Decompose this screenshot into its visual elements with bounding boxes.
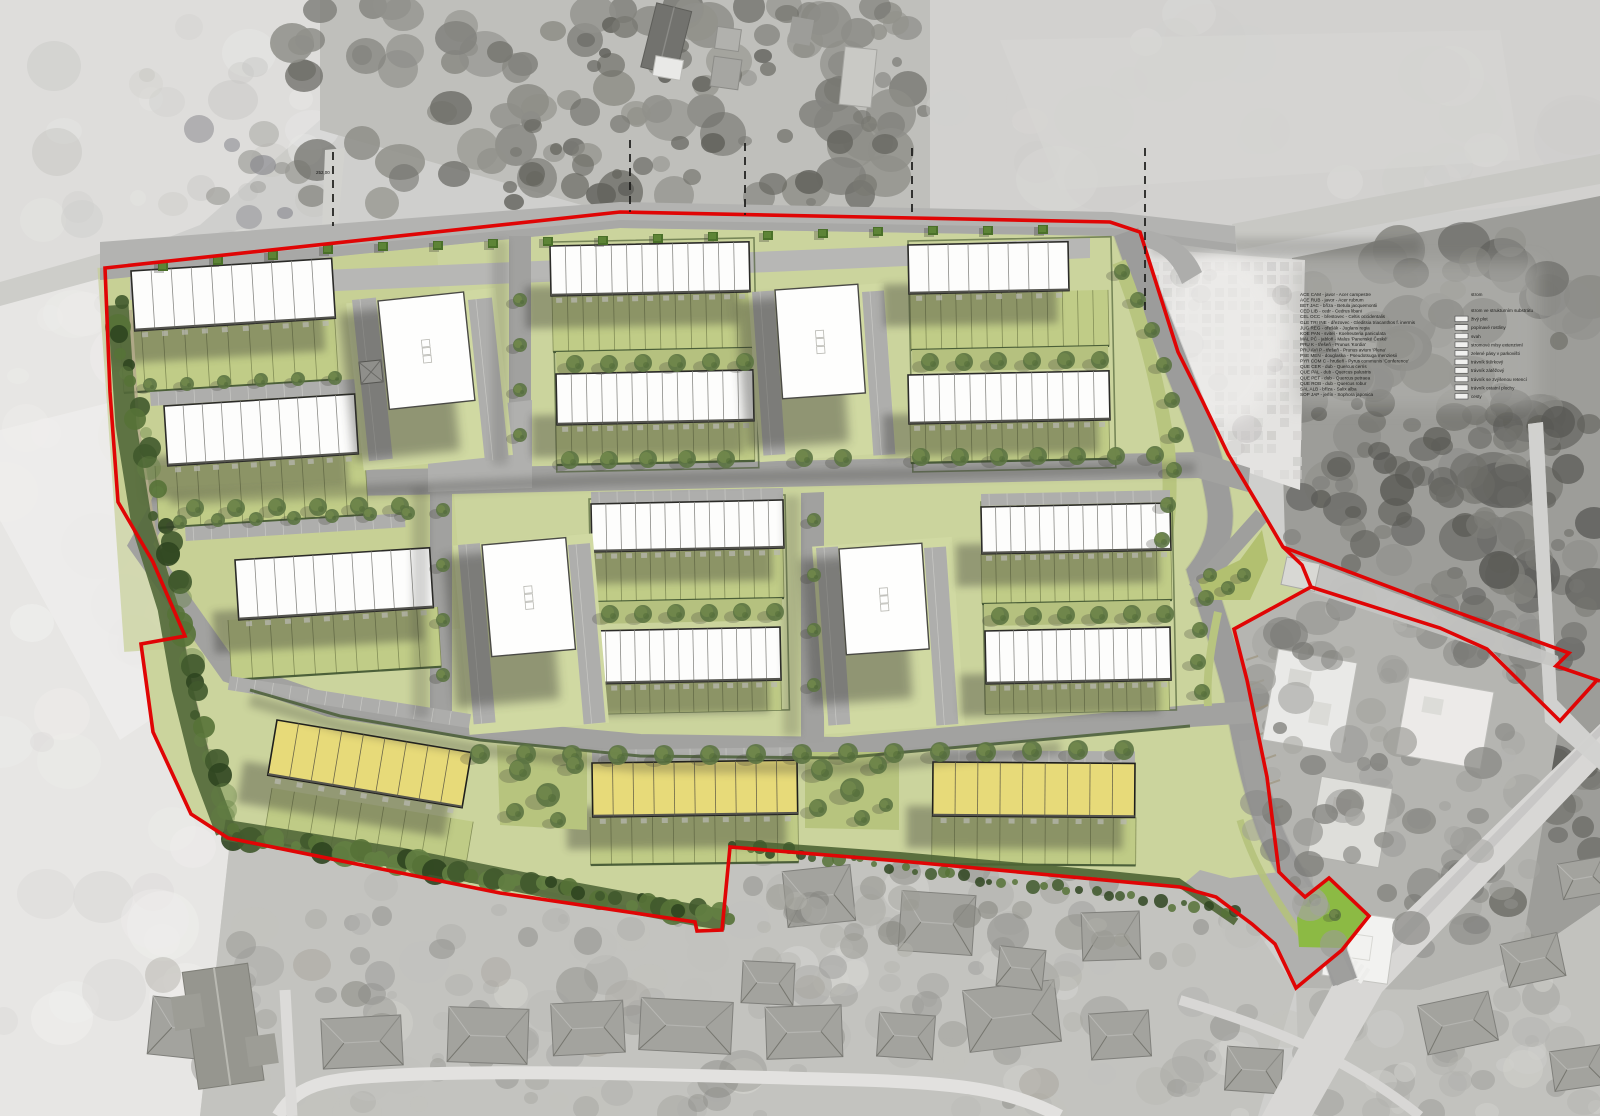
svg-text:strom ve strukturním substrátu: strom ve strukturním substrátu — [1471, 308, 1533, 313]
svg-text:trávník ostatní plochy: trávník ostatní plochy — [1471, 385, 1515, 390]
svg-text:trávník štěrkový: trávník štěrkový — [1471, 360, 1504, 365]
svg-text:MAL PČ - jabloň - Malus 'Panen: MAL PČ - jabloň - Malus 'Panenské České' — [1300, 335, 1387, 341]
svg-text:trávník se zvýšenou retencí: trávník se zvýšenou retencí — [1471, 377, 1528, 382]
svg-text:BET JAC - bříza - Betula jacqu: BET JAC - bříza - Betula jacquemontii — [1300, 303, 1377, 308]
svg-text:PRU K - třešeň - Prunus 'Kordi: PRU K - třešeň - Prunus 'Kordia' — [1300, 342, 1366, 347]
svg-text:strom: strom — [1471, 292, 1483, 297]
svg-text:svah: svah — [1471, 334, 1481, 339]
svg-text:ACE CAM - javor - Acer campest: ACE CAM - javor - Acer campestre — [1300, 292, 1371, 297]
svg-text:cesty: cesty — [1471, 394, 1482, 399]
svg-text:KOE PAN - svitel - Koelreuteri: KOE PAN - svitel - Koelreuteria panicula… — [1300, 331, 1386, 336]
svg-text:živý plot: živý plot — [1471, 317, 1488, 322]
svg-text:PSE MEN - douglaska - Pseudots: PSE MEN - douglaska - Pseudotsuga menzie… — [1300, 353, 1397, 358]
svg-text:PYR COM C - hrušeň - Pyrus com: PYR COM C - hrušeň - Pyrus communis 'Con… — [1300, 359, 1409, 364]
svg-text:PRU AVI P - třešeň - Prunus av: PRU AVI P - třešeň - Prunus avium 'Plena… — [1300, 348, 1386, 353]
svg-text:trávník zátěžový: trávník zátěžový — [1471, 368, 1505, 373]
svg-text:QUE CER - dub - Quercus cerris: QUE CER - dub - Quercus cerris — [1300, 364, 1367, 369]
svg-text:QUE ROB - dub - Quercus robur: QUE ROB - dub - Quercus robur — [1300, 381, 1367, 386]
svg-text:JUG REG - ořešák - Juglans reg: JUG REG - ořešák - Juglans regia — [1300, 325, 1370, 330]
svg-text:SAL ALB - bříza - Salix alba: SAL ALB - bříza - Salix alba — [1300, 386, 1357, 391]
svg-text:zelené pásy v parkovišti: zelené pásy v parkovišti — [1471, 351, 1520, 356]
svg-text:QUE PET - dub - Quercus petrae: QUE PET - dub - Quercus petraea — [1300, 375, 1371, 380]
svg-text:GLE TRI INE - dřezovec - Gledi: GLE TRI INE - dřezovec - Gleditsia triac… — [1300, 320, 1416, 325]
svg-text:ACE RUB - javor - Acer rubrum: ACE RUB - javor - Acer rubrum — [1300, 298, 1364, 303]
svg-text:popínavé rostliny: popínavé rostliny — [1471, 325, 1506, 330]
svg-text:QUE PAL - dub - Quercus palust: QUE PAL - dub - Quercus palustris — [1300, 370, 1372, 375]
svg-text:252,00: 252,00 — [316, 170, 330, 175]
svg-text:CEL OCC - břestovec - Celtis o: CEL OCC - břestovec - Celtis occidentali… — [1300, 314, 1386, 319]
svg-text:SOP JAP - jerlín - Sophora jap: SOP JAP - jerlín - Sophora japonica — [1300, 392, 1374, 397]
svg-text:stromové mísy extenzivní: stromové mísy extenzivní — [1471, 342, 1524, 347]
svg-text:CED LIB - cedr - Cedrus libani: CED LIB - cedr - Cedrus libani — [1300, 309, 1362, 314]
